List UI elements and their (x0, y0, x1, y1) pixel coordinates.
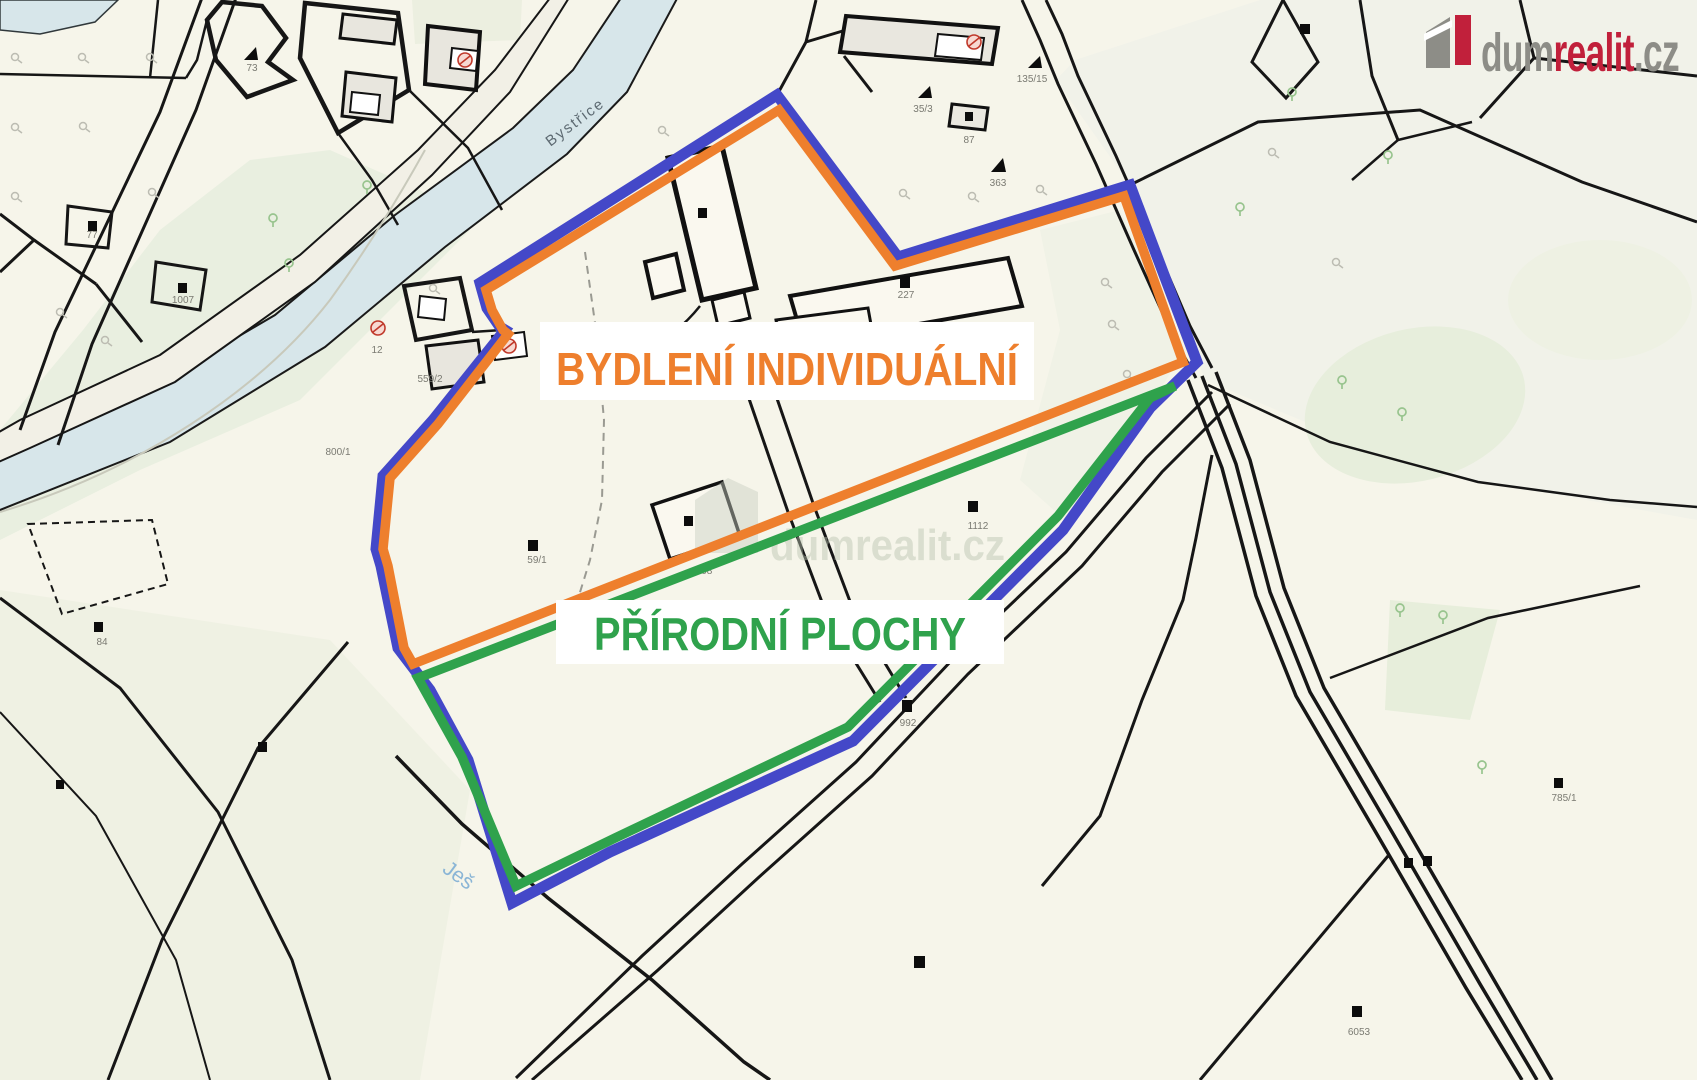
parcel-number: 35/3 (913, 104, 933, 115)
parcel-number: 73 (246, 63, 258, 74)
parcel-number: 59/1 (527, 555, 547, 566)
zoning-overlays (376, 95, 1197, 903)
parcel-number: 84 (96, 637, 108, 648)
zone-labels: BYDLENÍ INDIVIDUÁLNÍ PŘÍRODNÍ PLOCHY (540, 322, 1034, 664)
logo-text-realit: realit (1554, 23, 1635, 83)
cadastral-map-canvas: 73 12 1007 77 800/1 559/2 35/3 87 135/15… (0, 0, 1697, 1080)
parcel-number: 6053 (1348, 1027, 1371, 1038)
zone-natural-label: PŘÍRODNÍ PLOCHY (594, 608, 966, 660)
parcel-number: 77 (86, 230, 98, 241)
site-logo-text: dumrealit.cz (1481, 23, 1679, 83)
river-bystrice (0, 0, 687, 518)
zone-residential-label: BYDLENÍ INDIVIDUÁLNÍ (556, 343, 1019, 395)
pond (0, 0, 118, 34)
parcel-number: 559/2 (417, 374, 442, 385)
parcel-number: 135/15 (1017, 74, 1048, 85)
parcel-number: 992 (900, 718, 917, 729)
parcel-number: 1007 (172, 295, 195, 306)
parcel-number: 800/1 (325, 447, 350, 458)
parcel-number: 12 (371, 345, 383, 356)
buildings (340, 14, 1022, 559)
parcel-number: 363 (990, 178, 1007, 189)
parcel-number: 87 (963, 135, 975, 146)
logo-text-dum: dum (1481, 23, 1554, 83)
parcel-number: 785/1 (1551, 793, 1576, 804)
map-screenshot: 73 12 1007 77 800/1 559/2 35/3 87 135/15… (0, 0, 1697, 1080)
logo-text-cz: .cz (1634, 23, 1679, 83)
parcel-number: 227 (898, 290, 915, 301)
